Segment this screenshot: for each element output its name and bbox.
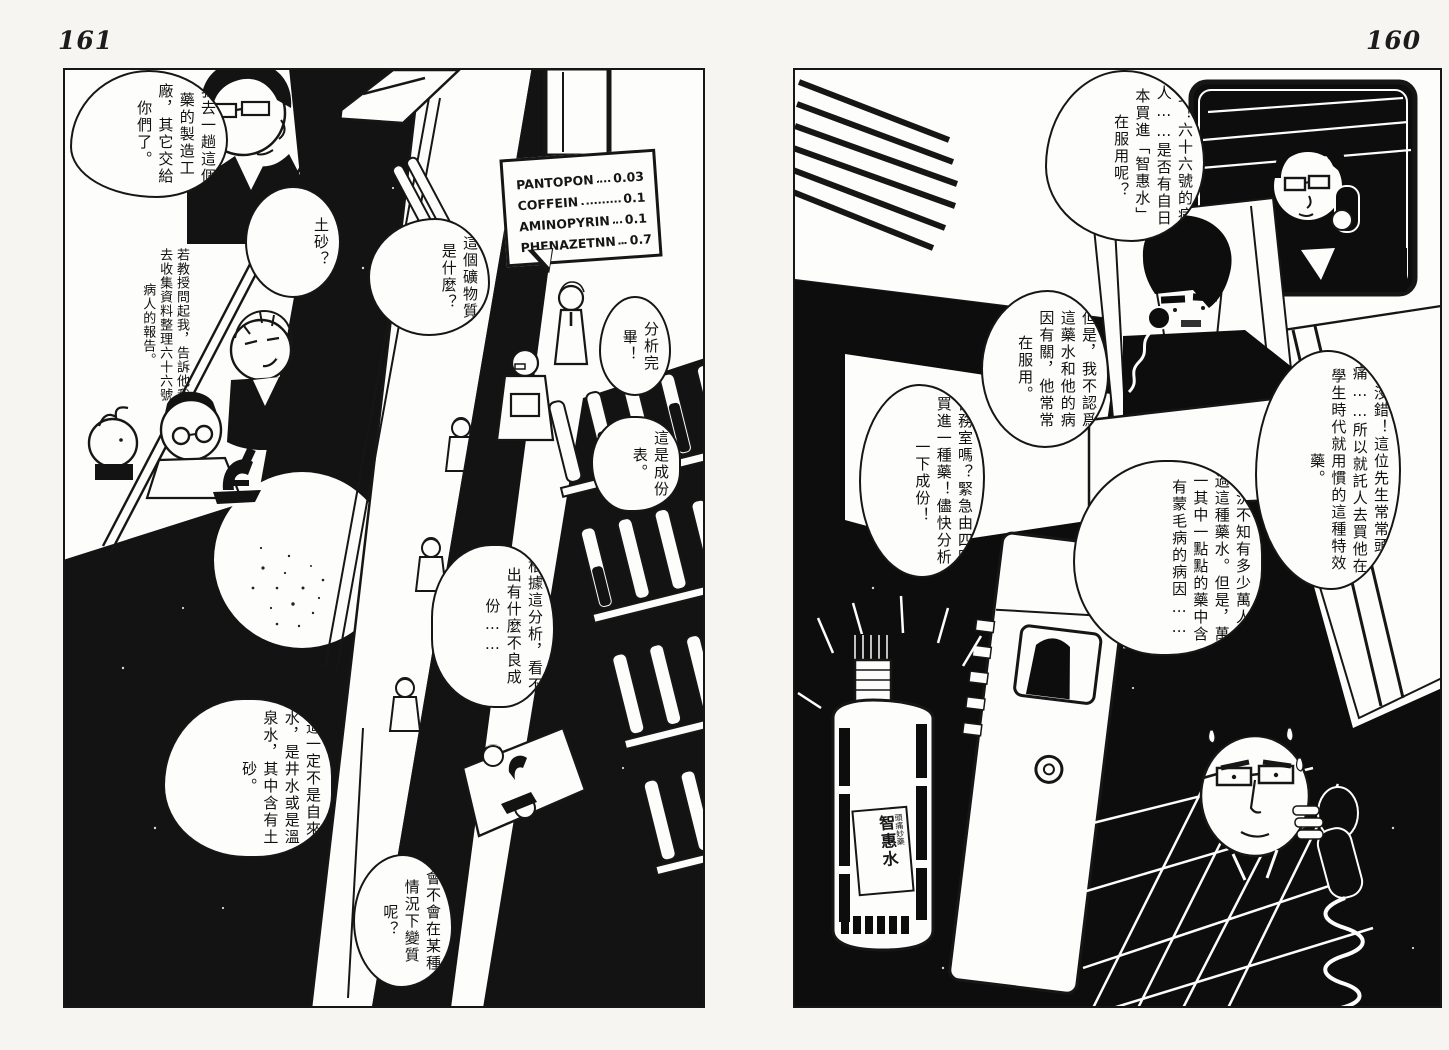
speech-bubble-change: 會不會在某種情況下變質呢？ (353, 854, 453, 988)
speech-bubble-sand: 土砂？ (245, 186, 341, 298)
phone-receiver-icon (1148, 307, 1170, 329)
lab-door (545, 68, 609, 156)
page-161: 我去一趟這個藥的製造工廠，其它交給你們了。 若教授問起我，告訴他我去收集資料整理… (63, 68, 705, 1008)
caption-professor: 若教授問起我，告訴他我去收集資料整理六十六號病人的報告。 (75, 244, 193, 406)
compound-value: 0.03 (613, 169, 645, 186)
speech-bubble-clinic: 醫務室嗎？緊急由四國買進一種藥！儘快分析一下成份！ (859, 384, 985, 578)
hand-fingers (1293, 806, 1323, 839)
speech-bubble-composition: 這是成份表。 (591, 416, 681, 512)
compound-value: 0.7 (629, 231, 652, 248)
speech-bubble-headache: 沒錯！這位先生常常頭痛……所以就託人去買他在學生時代就用慣的這種特效藥。 (1255, 350, 1401, 590)
speech-bubble-mineral: 這個礦物質是什麼？ (368, 218, 490, 336)
compound-value: 0.1 (623, 189, 646, 206)
analysis-sign: PANTOPON 0.03 COFFEIN 0.1 AMINOPYRIN 0.1… (499, 149, 662, 268)
dotted-leader (597, 180, 611, 183)
blonde-technician (555, 282, 587, 364)
speech-bubble-millions: 何況不知有多少萬人喝過這種藥水。但是，萬一其中一點點的藥中含有蒙毛病的病因…… (1073, 460, 1263, 656)
compound-value: 0.1 (624, 210, 647, 227)
speech-bubble-water: 這一定不是自來水，是井水或是溫泉水，其中含有土砂。 (163, 698, 333, 858)
speech-bubble-analysis-done: 分析完畢！ (599, 296, 671, 396)
dotted-leader (619, 242, 627, 245)
manga-spread: 161 160 (0, 0, 1449, 1050)
page-number-right: 160 (1366, 26, 1421, 55)
compound-name: PHENAZETNN (520, 234, 616, 256)
speech-bubble-doubt: 但是，我不認爲這藥水和他的病因有關，他常常在服用。 (981, 290, 1109, 448)
bottle-label: 頭痛妙藥 智惠水 (851, 806, 914, 897)
page-160: 對！六十六號的病人……是否有自日本買進「智惠水」在服用呢？ 但是，我不認爲這藥水… (793, 68, 1442, 1008)
bottle-cap (849, 634, 897, 660)
door-knob (1034, 755, 1063, 784)
speech-bubble-no-defect: 根據這分析，看不出有什麼不良成份…… (431, 544, 555, 708)
dotted-leader (613, 221, 622, 224)
speech-bubble-patient: 對！六十六號的病人……是否有自日本買進「智惠水」在服用呢？ (1045, 70, 1205, 242)
page-number-left: 161 (58, 26, 113, 55)
dotted-leader (581, 200, 620, 205)
